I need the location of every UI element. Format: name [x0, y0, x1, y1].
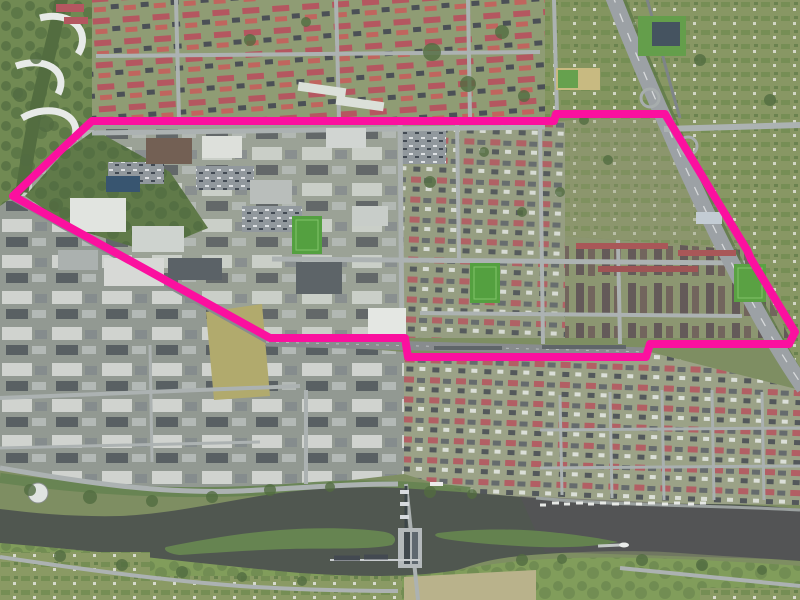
map-viewport[interactable] — [0, 0, 800, 600]
aerial-imagery — [0, 0, 800, 600]
map-features — [0, 0, 800, 600]
haze-overlay — [0, 0, 800, 600]
